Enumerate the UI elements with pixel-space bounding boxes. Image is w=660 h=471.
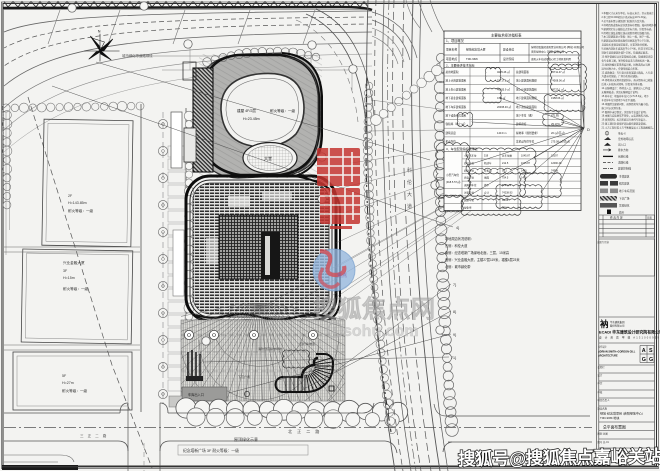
svg-text:办公车位: 办公车位 (464, 161, 475, 165)
svg-text:20 (㎡/百㎡): 20 (㎡/百㎡) (551, 131, 565, 135)
svg-text:地上建筑面积规模: 地上建筑面积规模 (516, 79, 537, 83)
svg-text:消防车道距建筑外墙5~10米，荷载满足要求。: 消防车道距建筑外墙5~10米，荷载满足要求。 (602, 51, 650, 55)
svg-text:设 计 资 质 甲 级 A1310009591: 设 计 资 质 甲 级 A1310009591 (599, 336, 660, 340)
svg-text:无障碍车位: 无障碍车位 (464, 183, 477, 187)
svg-text:搜狐焦点网: 搜狐焦点网 (313, 295, 436, 323)
svg-text:3.总平面布置以规划部门批准的方案为准。: 3.总平面布置以规划部门批准的方案为准。 (602, 19, 647, 23)
svg-text:东侧：科伦大道: 东侧：科伦大道 (445, 243, 468, 248)
svg-text:纪念塔新广场 3F 耐火等级：一级: 纪念塔新广场 3F 耐火等级：一级 (183, 448, 239, 453)
svg-text:4.场地四周道路标高详见竖向布置图，坡向场地外侧。: 4.场地四周道路标高详见竖向布置图，坡向场地外侧。 (602, 23, 659, 27)
svg-text:275.08 (㎡/百㎡): 275.08 (㎡/百㎡) (551, 140, 570, 144)
svg-text:7.本工程建筑耐火等级：地上一级，地下一级。: 7.本工程建筑耐火等级：地上一级，地下一级。 (602, 35, 652, 39)
svg-text:1958.06 ㎡: 1958.06 ㎡ (551, 96, 564, 100)
svg-text:城市绿化带道路绿线: 城市绿化带道路绿线 (122, 53, 153, 58)
svg-text:裙房建筑: 裙房建筑 (619, 182, 630, 186)
svg-text:日期: 日期 (647, 216, 652, 220)
svg-text:地下车库范围: 地下车库范围 (619, 189, 635, 193)
svg-text:2、主要经济技术指标: 2、主要经济技术指标 (446, 62, 475, 67)
svg-text:适生树种为主，乔灌草相结合布置。: 适生树种为主，乔灌草相结合布置。 (602, 66, 640, 70)
svg-text:10.室外管线综合详见管线综合图，管线埋深详见: 10.室外管线综合详见管线综合图，管线埋深详见 (602, 55, 654, 59)
svg-text:S: S (649, 348, 653, 354)
svg-text:地下建筑面积规模: 地下建筑面积规模 (516, 96, 537, 100)
svg-text:地下车位（辆）: 地下车位（辆） (516, 114, 534, 118)
svg-text:坐标-X: 坐标-X (618, 132, 626, 136)
svg-text:伦: 伦 (407, 179, 412, 186)
svg-text:地下设备用房面积: 地下设备用房面积 (446, 114, 467, 118)
svg-text:审定: 审定 (598, 381, 603, 385)
svg-text:贵阳火车站站场核心区土地开发利用: 贵阳火车站站场核心区土地开发利用 (531, 57, 572, 61)
svg-text:4035.46 ㎡: 4035.46 ㎡ (497, 70, 510, 74)
svg-text:15.停车位：地面停车位尺寸2.5×5.3米，地下: 15.停车位：地面停车位尺寸2.5×5.3米，地下 (602, 94, 650, 98)
svg-text:设计阶段: 设计阶段 (503, 57, 514, 61)
svg-text:总平面布置图: 总平面布置图 (603, 424, 626, 429)
svg-text:景观绿化: 景观绿化 (619, 204, 630, 208)
svg-text:绿地控股集团贵阳置业有限公司 (两块) 有限公司: 绿地控股集团贵阳置业有限公司 (两块) 有限公司 (531, 45, 585, 49)
svg-text:ECADI 华东建筑设计研究院有限公司: ECADI 华东建筑设计研究院有限公司 (599, 330, 660, 335)
svg-text:地下商业建筑面积: 地下商业建筑面积 (446, 96, 467, 100)
svg-text:审核: 审核 (598, 390, 603, 394)
svg-text:无障碍坡道，详见无障碍设计说明。: 无障碍坡道，详见无障碍设计说明。 (602, 90, 640, 94)
svg-text:且连续长度满足规范要求，详见消防分析图。: 且连续长度满足规范要求，详见消防分析图。 (602, 43, 650, 47)
svg-text:总用地面积: 总用地面积 (446, 70, 459, 74)
svg-text:自行车坡道: 自行车坡道 (300, 341, 315, 346)
svg-text:主要技术经济指标表: 主要技术经济指标表 (491, 33, 522, 38)
svg-text:绿地率（规划要求）: 绿地率（规划要求） (516, 131, 539, 135)
svg-text:项目负责人: 项目负责人 (598, 398, 611, 402)
svg-text:耐火等级：一级: 耐火等级：一级 (68, 208, 94, 213)
svg-text:11.绿化种植详见景观设计图，树种选择以当地: 11.绿化种植详见景观设计图，树种选择以当地 (602, 62, 651, 66)
svg-text:20935.46 ㎡: 20935.46 ㎡ (497, 105, 512, 109)
svg-text:合计: 合计 (484, 191, 490, 195)
svg-text:三 正 二 路: 三 正 二 路 (80, 433, 108, 438)
svg-text:项目地点: 项目地点 (446, 57, 457, 61)
svg-text:2.本工程±0.000相当于绝对标高1071.30米。: 2.本工程±0.000相当于绝对标高1071.30米。 (602, 15, 649, 19)
svg-text:后排入市政雨水管网，详见室外排水图。: 后排入市政雨水管网，详见室外排水图。 (602, 82, 645, 86)
svg-text:地上计容建筑面积: 地上计容建筑面积 (516, 87, 537, 91)
svg-text:焦点: 焦点 (337, 272, 347, 279)
svg-text:8.建筑周边消防登高操作场地宽度不小于10米，: 8.建筑周边消防登高操作场地宽度不小于10米， (602, 39, 652, 43)
svg-text:出图专用章: 出图专用章 (597, 240, 610, 244)
svg-text:旗杆: 旗杆 (619, 211, 625, 215)
svg-text:1045.87: 1045.87 (521, 155, 531, 158)
svg-text:消防登高操作场地: 消防登高操作场地 (258, 346, 282, 351)
svg-text:ADRIAN SMITH+GORDON GILL: ADRIAN SMITH+GORDON GILL (598, 351, 636, 354)
svg-text:项目名称: 项目名称 (446, 48, 457, 52)
svg-text:图别 总图: 图别 总图 (598, 432, 609, 436)
svg-text:地下车库建筑面积: 地下车库建筑面积 (446, 105, 467, 109)
svg-text:耐火等级：一级: 耐火等级：一级 (62, 388, 88, 393)
svg-text:车库出入口: 车库出入口 (188, 392, 204, 397)
svg-text:华东建筑集团: 华东建筑集团 (610, 320, 625, 324)
svg-text:14.无障碍设计：场地出入口、建筑出入口均设: 14.无障碍设计：场地出入口、建筑出入口均设 (602, 86, 651, 90)
svg-text:17.图例中未尽事宜，详见各专业设计说明。: 17.图例中未尽事宜，详见各专业设计说明。 (602, 110, 648, 114)
svg-text:H=15m: H=15m (63, 276, 75, 280)
svg-text:D: D (587, 127, 590, 132)
svg-text:N: N (98, 29, 101, 33)
svg-text:212.5: 212.5 (502, 162, 509, 165)
svg-text:T0D-968t 地块: T0D-968t 地块 (600, 415, 619, 420)
svg-text:地上办公建筑面积: 地上办公建筑面积 (446, 87, 467, 91)
svg-text:3、车位配建指标及绿化: 3、车位配建指标及绿化 (446, 146, 478, 151)
svg-text:屋顶绿化示意: 屋顶绿化示意 (234, 436, 258, 442)
svg-text:16.本图所注建筑间距、退界距离均为最小值，: 16.本图所注建筑间距、退界距离均为最小值， (602, 102, 651, 106)
svg-text:耐火等级：一级: 耐火等级：一级 (63, 286, 89, 291)
svg-text:ⓢsohu.com: ⓢsohu.com (327, 321, 419, 340)
svg-text:6.用地红线及道路红线以规划用地红线图为准。: 6.用地红线及道路红线以规划用地红线图为准。 (602, 31, 652, 35)
svg-text:贵阳绿地中心 (项目) 有限公司: 贵阳绿地中心 (项目) 有限公司 (531, 50, 565, 54)
svg-text:施工时以实测为准。: 施工时以实测为准。 (602, 106, 624, 110)
svg-text:21.土方工程详见土方平衡图及岩土工程勘察报告。: 21.土方工程详见土方平衡图及岩土工程勘察报告。 (602, 126, 656, 130)
svg-text:绿地纪念塔大厦: 绿地纪念塔大厦 (466, 48, 486, 52)
svg-text:排水方向: 排水方向 (618, 148, 629, 152)
svg-text:机动车: 机动车 (484, 161, 492, 165)
svg-text:下沉广场: 下沉广场 (619, 197, 630, 201)
svg-text:小型汽车位: 小型汽车位 (446, 173, 459, 177)
svg-text:容积率（地上/㎡）: 容积率（地上/㎡） (446, 122, 467, 126)
svg-text:19.夜景照明、标识系统另行委托专项设计。: 19.夜景照明、标识系统另行委托专项设计。 (602, 118, 648, 122)
svg-text:图号 总-01: 图号 总-01 (598, 440, 610, 444)
svg-text:各专业施工图，室外检查井盖与场地标高一致。: 各专业施工图，室外检查井盖与场地标高一致。 (602, 58, 652, 62)
svg-text:绿地·纪念塔项目 (贵阳绿地中心): 绿地·纪念塔项目 (贵阳绿地中心) (600, 411, 643, 416)
svg-text:绿化率: 绿化率 (464, 205, 472, 209)
svg-text:为透水砖铺装，广场为花岗岩铺装。: 为透水砖铺装，广场为花岗岩铺装。 (602, 74, 640, 78)
svg-text:建筑密度: 建筑密度 (516, 122, 527, 126)
svg-text:G: G (649, 357, 653, 363)
svg-text:H=143.85m: H=143.85m (68, 201, 87, 205)
svg-text:耐火等级：一级: 耐火等级：一级 (270, 108, 296, 113)
svg-text:项目名称: 项目名称 (598, 407, 608, 411)
svg-text:18.本图与实际地形不符处，以实测地形为准。: 18.本图与实际地形不符处，以实测地形为准。 (602, 114, 651, 118)
svg-text:股份有限公司: 股份有限公司 (610, 324, 625, 328)
svg-text:9.场地内消防车道宽度不小于4米，转弯半径12米，: 9.场地内消防车道宽度不小于4米，转弯半径12米， (602, 47, 656, 51)
svg-text:出入口: 出入口 (618, 143, 626, 147)
svg-text:754.5: 754.5 (502, 177, 509, 180)
svg-text:74238.93: 74238.93 (502, 192, 513, 195)
svg-text:北 正 二 路: 北 正 二 路 (288, 428, 321, 434)
svg-text:G: G (642, 357, 646, 363)
svg-text:西侧：兴业金融大厦，主楼27层119米，裙楼4层23米: 西侧：兴业金融大厦，主楼27层119米，裙楼4层23米 (445, 257, 520, 262)
svg-text:1.本图尺寸以米为单位，标高以米计，余以毫米计。: 1.本图尺寸以米为单位，标高以米计，余以毫米计。 (602, 11, 657, 15)
svg-text:12097: 12097 (551, 155, 559, 158)
svg-text:总建筑面积: 总建筑面积 (516, 70, 529, 74)
svg-text:地下商业建筑面积: 地下商业建筑面积 (516, 105, 537, 109)
svg-text:20.施工期间注意保护周边既有建筑及管线。: 20.施工期间注意保护周边既有建筑及管线。 (602, 122, 648, 126)
svg-text:下沉广场: 下沉广场 (238, 374, 250, 379)
svg-text:12.道路做法：车行道为沥青混凝土路面，人行道: 12.道路做法：车行道为沥青混凝土路面，人行道 (602, 70, 654, 74)
svg-text:建屋 4F/2层: 建屋 4F/2层 (237, 108, 256, 113)
svg-text:地上计容建筑面积: 地上计容建筑面积 (446, 79, 467, 83)
svg-text:T0D-968t: T0D-968t (466, 57, 478, 61)
svg-text:76711.47 ㎡: 76711.47 ㎡ (551, 70, 565, 74)
svg-text:建筑高度: 建筑高度 (446, 131, 457, 135)
svg-text:140.9 m: 140.9 m (497, 131, 506, 135)
svg-text:13.场地排水采用有组织排水，雨水经雨水口收集: 13.场地排水采用有组织排水，雨水经雨水口收集 (602, 78, 654, 82)
svg-text:建设单位: 建设单位 (503, 48, 514, 52)
svg-text:兴业金融大厦: 兴业金融大厦 (63, 260, 85, 265)
svg-text:大: 大 (407, 191, 412, 198)
svg-text:衲: 衲 (599, 319, 609, 329)
svg-text:搜狐号@搜狐焦点嘉峪关站: 搜狐号@搜狐焦点嘉峪关站 (458, 446, 660, 469)
svg-text:修 改 内 容: 修 改 内 容 (610, 216, 623, 220)
svg-text:地面: 地面 (484, 176, 490, 180)
svg-text:(918.5.57㎡): (918.5.57㎡) (446, 180, 461, 184)
svg-text:71}: 71} (451, 356, 457, 360)
svg-text:大堂: 大堂 (264, 155, 272, 161)
svg-text:A: A (642, 348, 646, 354)
svg-text:场地周边状况说明：: 场地周边状况说明： (445, 236, 474, 241)
svg-text:H=23.45m: H=23.45m (243, 117, 260, 121)
svg-text:北侧：城市绿化带: 北侧：城市绿化带 (445, 264, 471, 269)
svg-text:室外地坪标高: 室外地坪标高 (618, 137, 634, 141)
svg-text:用地红线: 用地红线 (618, 155, 629, 159)
svg-text:519: 519 (484, 155, 489, 158)
svg-text:5.建筑物定位以轴线交点坐标为准，详见坐标表。: 5.建筑物定位以轴线交点坐标为准，详见坐标表。 (602, 27, 654, 31)
svg-text:ARCHITECTURE: ARCHITECTURE (598, 355, 618, 358)
svg-text:1、项目概况: 1、项目概况 (446, 38, 465, 43)
svg-text:总车位数: 总车位数 (502, 154, 513, 158)
svg-text:设计: 设计 (598, 373, 603, 377)
svg-text:南侧：纪念塔新广场绿地北面，三层，15米高: 南侧：纪念塔新广场绿地北面，三层，15米高 (445, 250, 509, 255)
svg-text:建筑控制线: 建筑控制线 (618, 167, 631, 171)
svg-text:车库停车位详见地下车库平面图。: 车库停车位详见地下车库平面图。 (602, 98, 638, 102)
svg-text:商业车位: 商业车位 (464, 168, 475, 172)
svg-text:会签栏: 会签栏 (598, 365, 606, 369)
svg-text:主体建筑: 主体建筑 (619, 175, 630, 179)
svg-text:74508.06 ㎡: 74508.06 ㎡ (551, 79, 566, 83)
svg-text:非机动车停车位: 非机动车停车位 (516, 140, 535, 144)
svg-text:道路红线: 道路红线 (618, 161, 629, 165)
svg-text:H=27m: H=27m (62, 381, 74, 385)
